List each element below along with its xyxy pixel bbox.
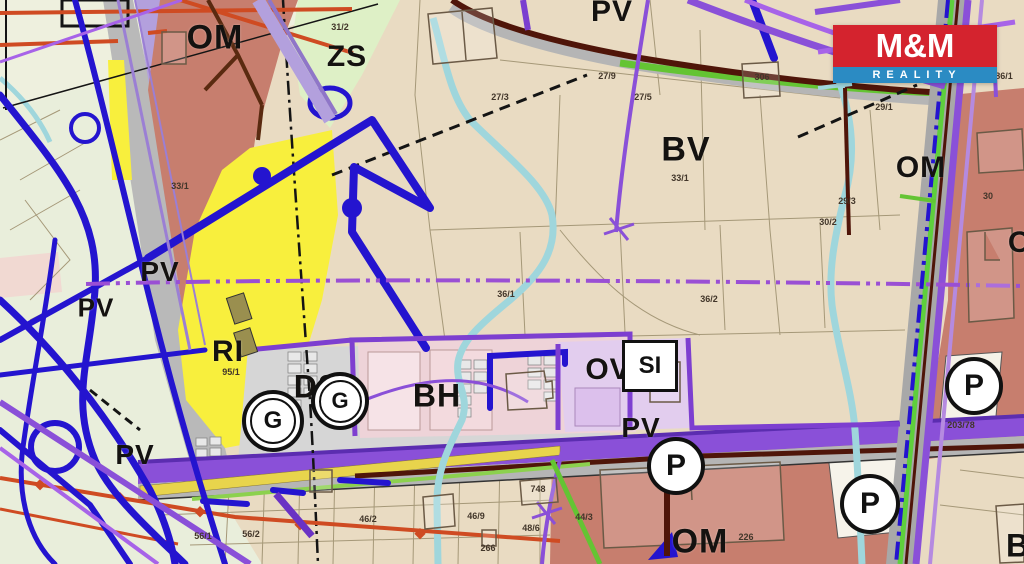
zone-label-om-topleft: OM [187,19,244,58]
zone-label-om-bottom: OM [672,523,729,562]
zone-label-si-box: SI [622,340,678,392]
zone-label-pv-left-upper: PV [140,256,179,288]
zone-label-ri: RI [212,335,244,369]
garage-symbol: G [311,372,369,430]
zone-label-si: SI [639,352,662,380]
parking-symbol-letter: P [657,447,696,486]
parcel-label: 86/1 [995,71,1013,81]
parcel-label: 29/1 [875,102,893,112]
zone-label-zs: ZS [327,40,367,74]
parcel-label: 46/9 [467,511,485,521]
zone-label-pv-center: PV [621,412,660,444]
garage-symbol-letter: G [250,398,296,444]
parcel-label: 44/3 [575,512,593,522]
parcel-label: 226 [738,532,753,542]
parcel-label: 27/5 [634,92,652,102]
parcel-label: 46/2 [359,514,377,524]
parcel-label: 30/2 [819,217,837,227]
zone-label-pv-top: PV [591,0,633,29]
zone-label-pv-left-lower: PV [78,293,115,324]
zoning-map: OM ZS PV BV OM PV PV RI DS BH OV PV PV O… [0,0,1024,564]
parcel-label: 48/6 [522,523,540,533]
garage-symbol-letter: G [319,380,362,423]
garage-symbol: G [242,390,304,452]
parcel-label: 27/9 [598,71,616,81]
parcel-label: 33/1 [671,173,689,183]
logo-title: M&M [833,25,997,67]
parcel-label: 203/78 [947,420,975,430]
parcel-label: 36/2 [700,294,718,304]
logo-subtitle: REALITY [833,67,997,83]
parcel-label: 33/1 [171,181,189,191]
parking-symbol-letter: P [850,484,891,525]
parcel-label: 306 [754,72,769,82]
zone-label-b-partial: B [1006,528,1024,564]
zone-label-bh: BH [413,378,461,415]
parking-symbol: P [647,437,705,495]
zone-label-om-right: OM [896,151,946,185]
parcel-label: 266 [480,543,495,553]
parking-symbol-letter: P [955,367,994,406]
realty-logo: M&M REALITY [833,25,997,83]
parcel-label: 31/2 [331,22,349,32]
parcel-label: 27/3 [491,92,509,102]
zone-label-pv-bottom-left: PV [115,439,154,471]
parking-symbol: P [840,474,900,534]
zone-label-bv: BV [661,131,710,170]
parking-symbol: P [945,357,1003,415]
zone-label-o-partial: O [1008,226,1024,260]
parcel-label: 95/1 [222,367,240,377]
parcel-label: 748 [530,484,545,494]
parcel-label: 30 [983,191,993,201]
parcel-label: 29/3 [838,196,856,206]
parcel-label: 36/1 [497,289,515,299]
parcel-label: 56/2 [242,529,260,539]
parcel-label: 56/1 [194,531,212,541]
